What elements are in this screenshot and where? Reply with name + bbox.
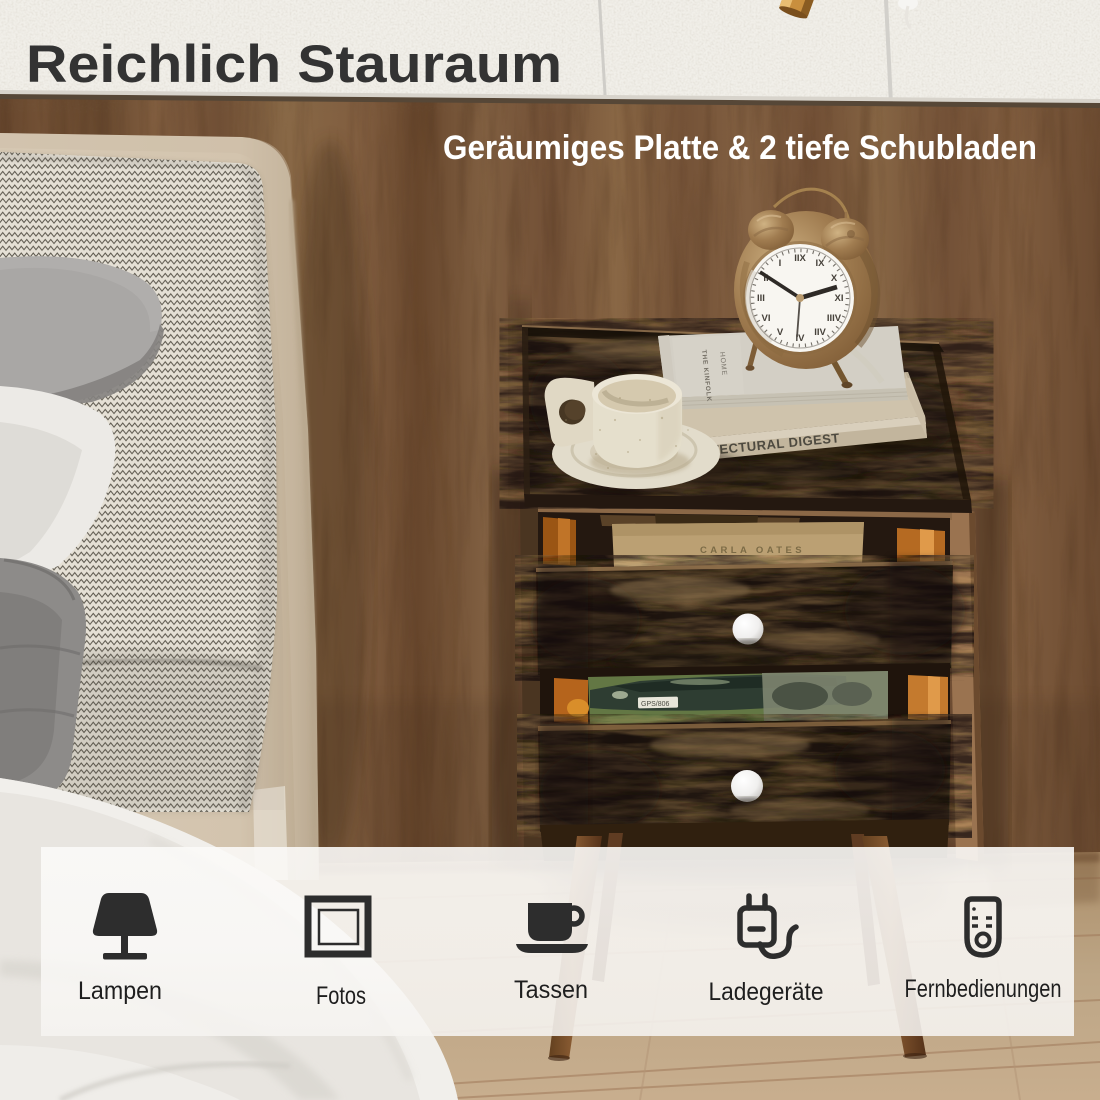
svg-text:V: V (777, 327, 784, 338)
svg-text:Reichlich Stauraum: Reichlich Stauraum (26, 35, 562, 94)
svg-text:Lampen: Lampen (78, 977, 162, 1005)
svg-text:VI: VI (762, 313, 771, 324)
svg-text:XI: XI (835, 293, 844, 304)
svg-text:Ladegeräte: Ladegeräte (709, 978, 824, 1006)
svg-text:IX: IX (816, 258, 826, 269)
svg-text:IIV: IIV (814, 327, 826, 338)
svg-text:IIX: IIX (794, 253, 806, 264)
svg-text:IIIV: IIIV (827, 313, 842, 324)
svg-text:X: X (831, 273, 838, 284)
svg-text:III: III (757, 293, 765, 304)
svg-text:Fotos: Fotos (316, 982, 366, 1010)
svg-text:CARLA OATES: CARLA OATES (700, 545, 805, 556)
svg-text:Fernbedienungen: Fernbedienungen (905, 975, 1062, 1003)
svg-text:GPS/806: GPS/806 (641, 701, 670, 708)
svg-text:Tassen: Tassen (514, 976, 588, 1004)
svg-text:I: I (779, 258, 782, 269)
svg-text:Geräumiges Platte & 2 tiefe Sc: Geräumiges Platte & 2 tiefe Schubladen (443, 129, 1037, 167)
